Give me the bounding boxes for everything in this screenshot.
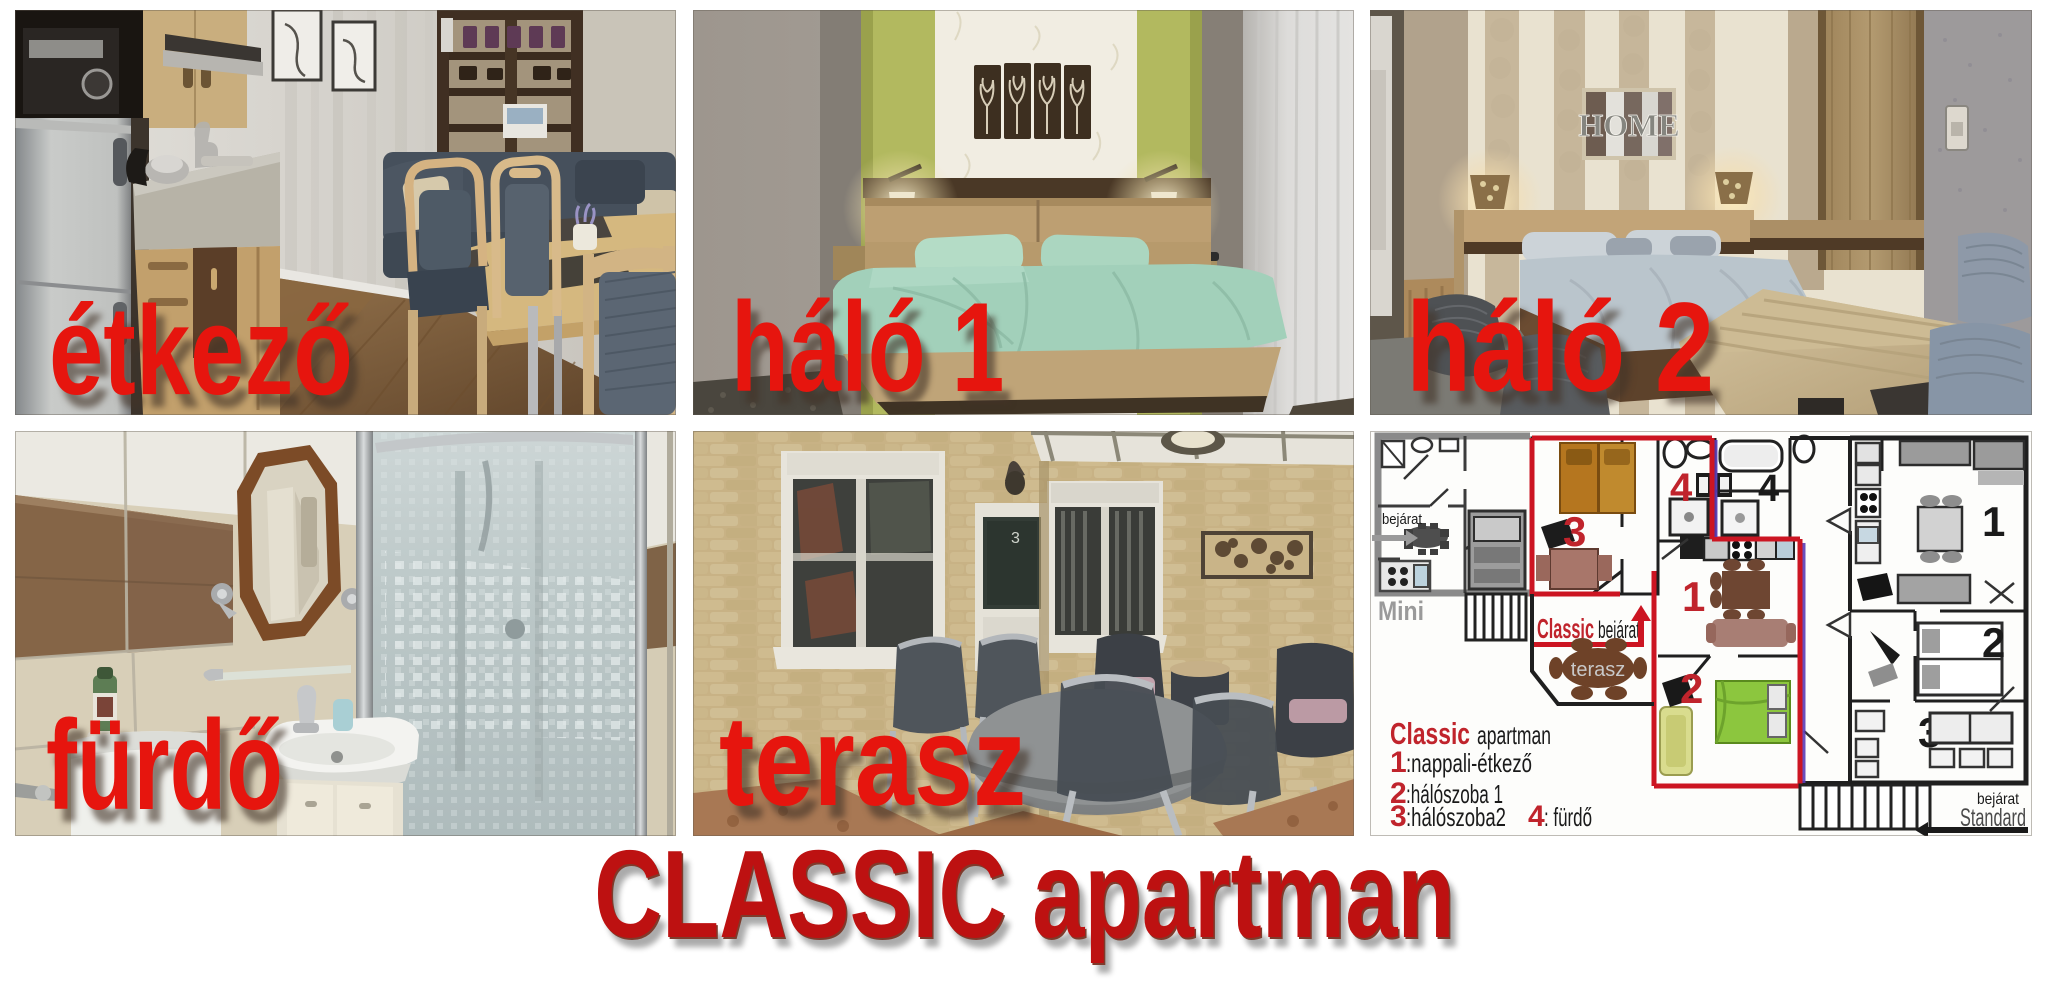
svg-text:3: 3: [1918, 709, 1941, 756]
svg-text:4: 4: [1758, 468, 1779, 510]
svg-text:Classic: Classic: [1390, 716, 1470, 751]
svg-text:3: 3: [1563, 508, 1586, 555]
svg-text:apartman: apartman: [1477, 720, 1551, 750]
svg-text:2: 2: [1982, 619, 2005, 666]
svg-text:Mini: Mini: [1378, 596, 1424, 626]
svg-text:1: 1: [1982, 498, 2005, 545]
svg-text::hálószoba 1: :hálószoba 1: [1406, 779, 1503, 809]
svg-text:Classic: Classic: [1537, 613, 1594, 644]
svg-text:bejárat: bejárat: [1977, 791, 2019, 808]
svg-text:3: 3: [1011, 530, 1020, 547]
svg-text:2: 2: [1680, 665, 1703, 712]
svg-text:bejárat: bejárat: [1598, 617, 1640, 644]
svg-text:4: 4: [1670, 466, 1693, 510]
svg-text:bejárat: bejárat: [1382, 511, 1423, 528]
svg-text:2: 2: [1390, 777, 1407, 810]
svg-text:terasz: terasz: [1571, 659, 1625, 681]
svg-text:HOME: HOME: [1578, 107, 1679, 143]
svg-text:1: 1: [1390, 746, 1407, 779]
svg-text:1: 1: [1682, 573, 1705, 620]
svg-text::nappali-étkező: :nappali-étkező: [1406, 748, 1532, 778]
